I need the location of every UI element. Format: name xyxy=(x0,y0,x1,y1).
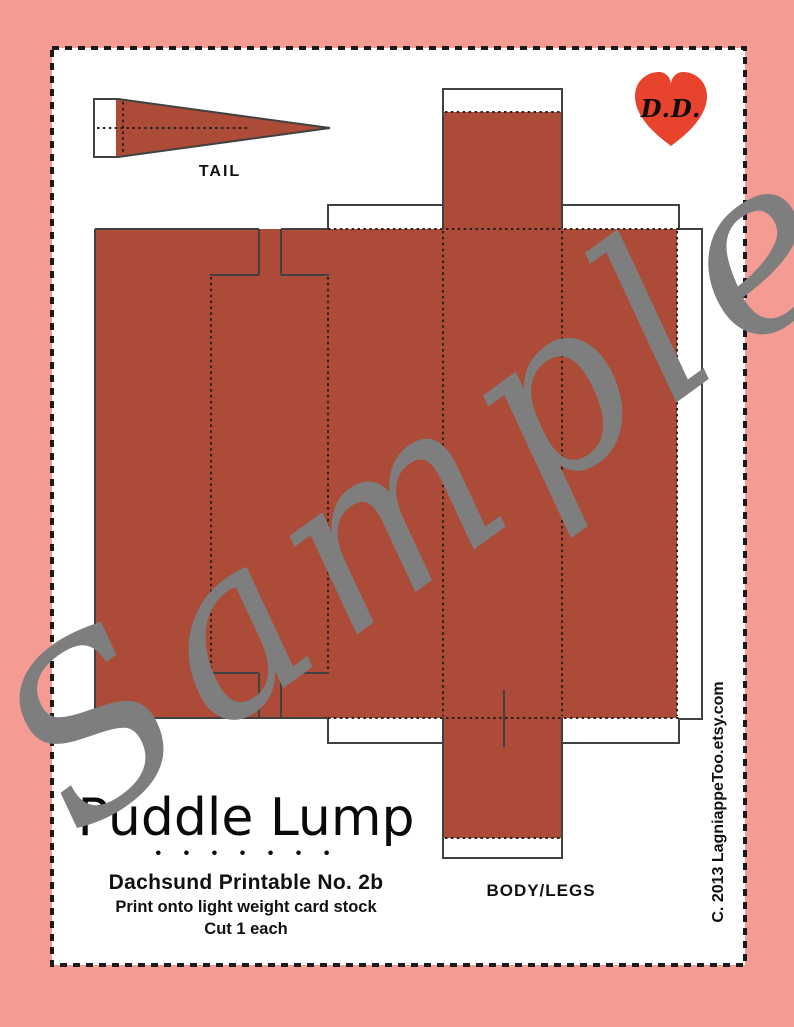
copyright-text: C. 2013 LagniappeToo.etsy.com xyxy=(710,681,728,922)
printable-page: TAIL BODY/LEGS D.D. Puddle Lump • • • • … xyxy=(0,0,794,1027)
instruction-line-2: Cut 1 each xyxy=(204,920,287,939)
body-piece-label: BODY/LEGS xyxy=(486,881,595,901)
printable-title: Dachsund Printable No. 2b xyxy=(109,871,384,895)
instruction-line-1: Print onto light weight card stock xyxy=(115,898,376,917)
dots-divider: • • • • • • • xyxy=(156,845,339,863)
tail-piece-label: TAIL xyxy=(199,163,241,181)
heart-monogram: D.D. xyxy=(641,94,702,123)
